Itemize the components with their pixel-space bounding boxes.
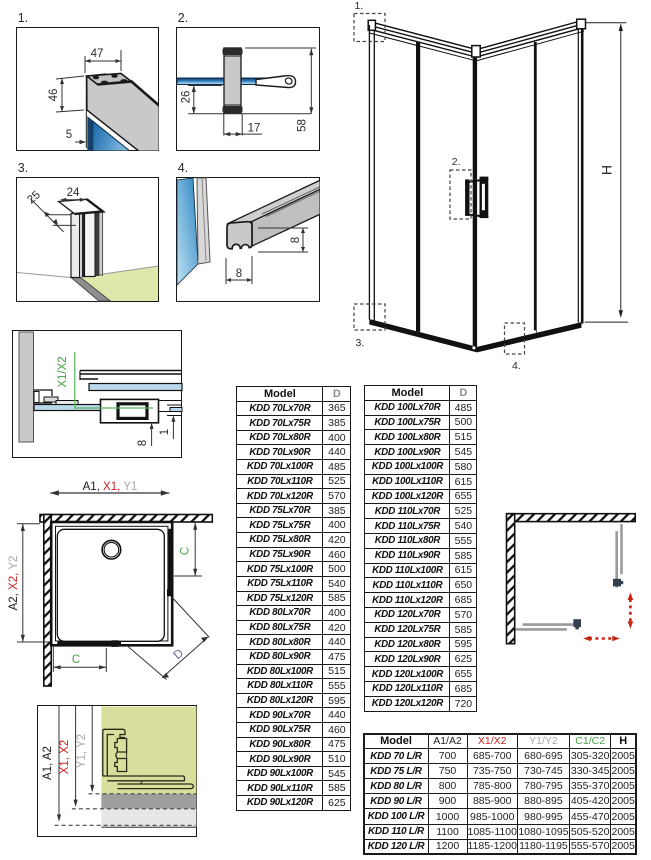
svg-text:26: 26	[181, 91, 193, 104]
svg-text:17: 17	[248, 123, 261, 135]
svg-text:8: 8	[236, 268, 242, 280]
svg-text:46: 46	[48, 89, 60, 102]
svg-text:24: 24	[67, 187, 80, 199]
svg-text:H: H	[599, 165, 615, 175]
svg-text:A1, X1, Y1: A1, X1, Y1	[83, 481, 138, 493]
svg-text:5: 5	[66, 129, 72, 141]
svg-text:8: 8	[137, 440, 149, 446]
svg-text:8: 8	[290, 237, 302, 243]
svg-text:A2, X2, Y2: A2, X2, Y2	[8, 556, 20, 611]
svg-text:C: C	[72, 654, 80, 666]
svg-text:1: 1	[159, 429, 171, 435]
svg-text:X1/X2: X1/X2	[57, 356, 69, 387]
svg-text:47: 47	[91, 48, 104, 60]
svg-text:58: 58	[297, 119, 309, 132]
svg-text:Y1, Y2: Y1, Y2	[76, 734, 88, 768]
svg-text:A1, A2: A1, A2	[42, 746, 54, 780]
svg-text:D: D	[170, 646, 186, 662]
svg-text:C: C	[180, 547, 192, 555]
svg-text:25: 25	[25, 189, 43, 206]
svg-text:X1, X2: X1, X2	[59, 740, 71, 775]
